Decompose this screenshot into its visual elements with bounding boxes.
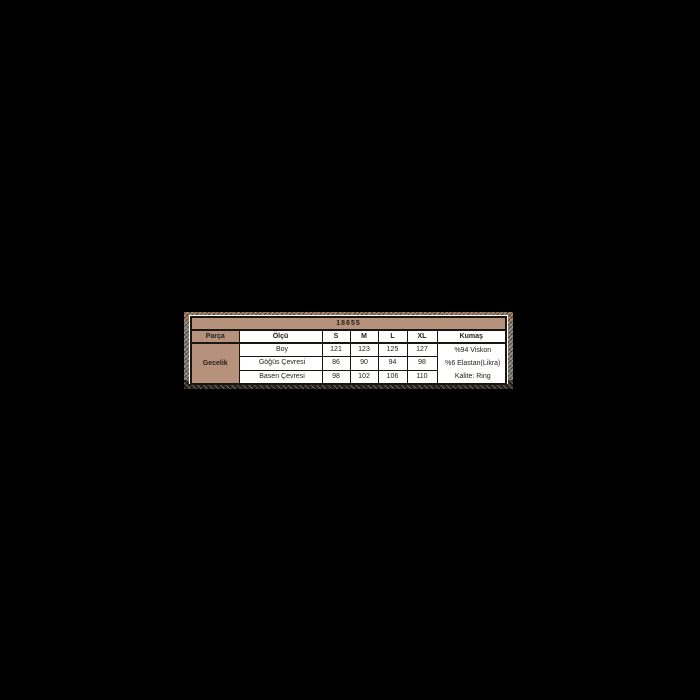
value-s: 86 (322, 357, 350, 371)
size-chart-frame: 18655 Parça Ölçü S M L XL Kumaş Gecelik … (184, 312, 513, 389)
fabric-line: %6 Elastan(Likra) (438, 357, 506, 370)
value-l: 125 (378, 343, 407, 357)
header-size-m: M (350, 330, 378, 343)
measure-label: Boy (239, 343, 322, 357)
size-chart-sheet: 18655 Parça Ölçü S M L XL Kumaş Gecelik … (189, 315, 508, 384)
part-label: Gecelik (191, 343, 239, 384)
value-m: 123 (350, 343, 378, 357)
measure-label: Basen Çevresi (239, 370, 322, 384)
header-size-s: S (322, 330, 350, 343)
value-l: 106 (378, 370, 407, 384)
black-canvas: 18655 Parça Ölçü S M L XL Kumaş Gecelik … (0, 0, 700, 700)
value-xl: 110 (407, 370, 437, 384)
table-row: 18655 (191, 317, 506, 330)
value-s: 98 (322, 370, 350, 384)
model-code: 18655 (191, 317, 506, 330)
header-size-l: L (378, 330, 407, 343)
value-m: 90 (350, 357, 378, 371)
header-size-xl: XL (407, 330, 437, 343)
table-row: Parça Ölçü S M L XL Kumaş (191, 330, 506, 343)
fabric-info: %94 Viskon %6 Elastan(Likra) Kalite: Rin… (437, 343, 506, 384)
value-xl: 127 (407, 343, 437, 357)
header-fabric: Kumaş (437, 330, 506, 343)
measure-label: Göğüs Çevresi (239, 357, 322, 371)
value-l: 94 (378, 357, 407, 371)
value-s: 121 (322, 343, 350, 357)
header-measure: Ölçü (239, 330, 322, 343)
header-part: Parça (191, 330, 239, 343)
table-row: Gecelik Boy 121 123 125 127 %94 Viskon %… (191, 343, 506, 357)
value-xl: 98 (407, 357, 437, 371)
size-chart-table: 18655 Parça Ölçü S M L XL Kumaş Gecelik … (190, 316, 507, 385)
fabric-line: Kalite: Ring (438, 370, 506, 383)
value-m: 102 (350, 370, 378, 384)
fabric-line: %94 Viskon (438, 344, 506, 357)
